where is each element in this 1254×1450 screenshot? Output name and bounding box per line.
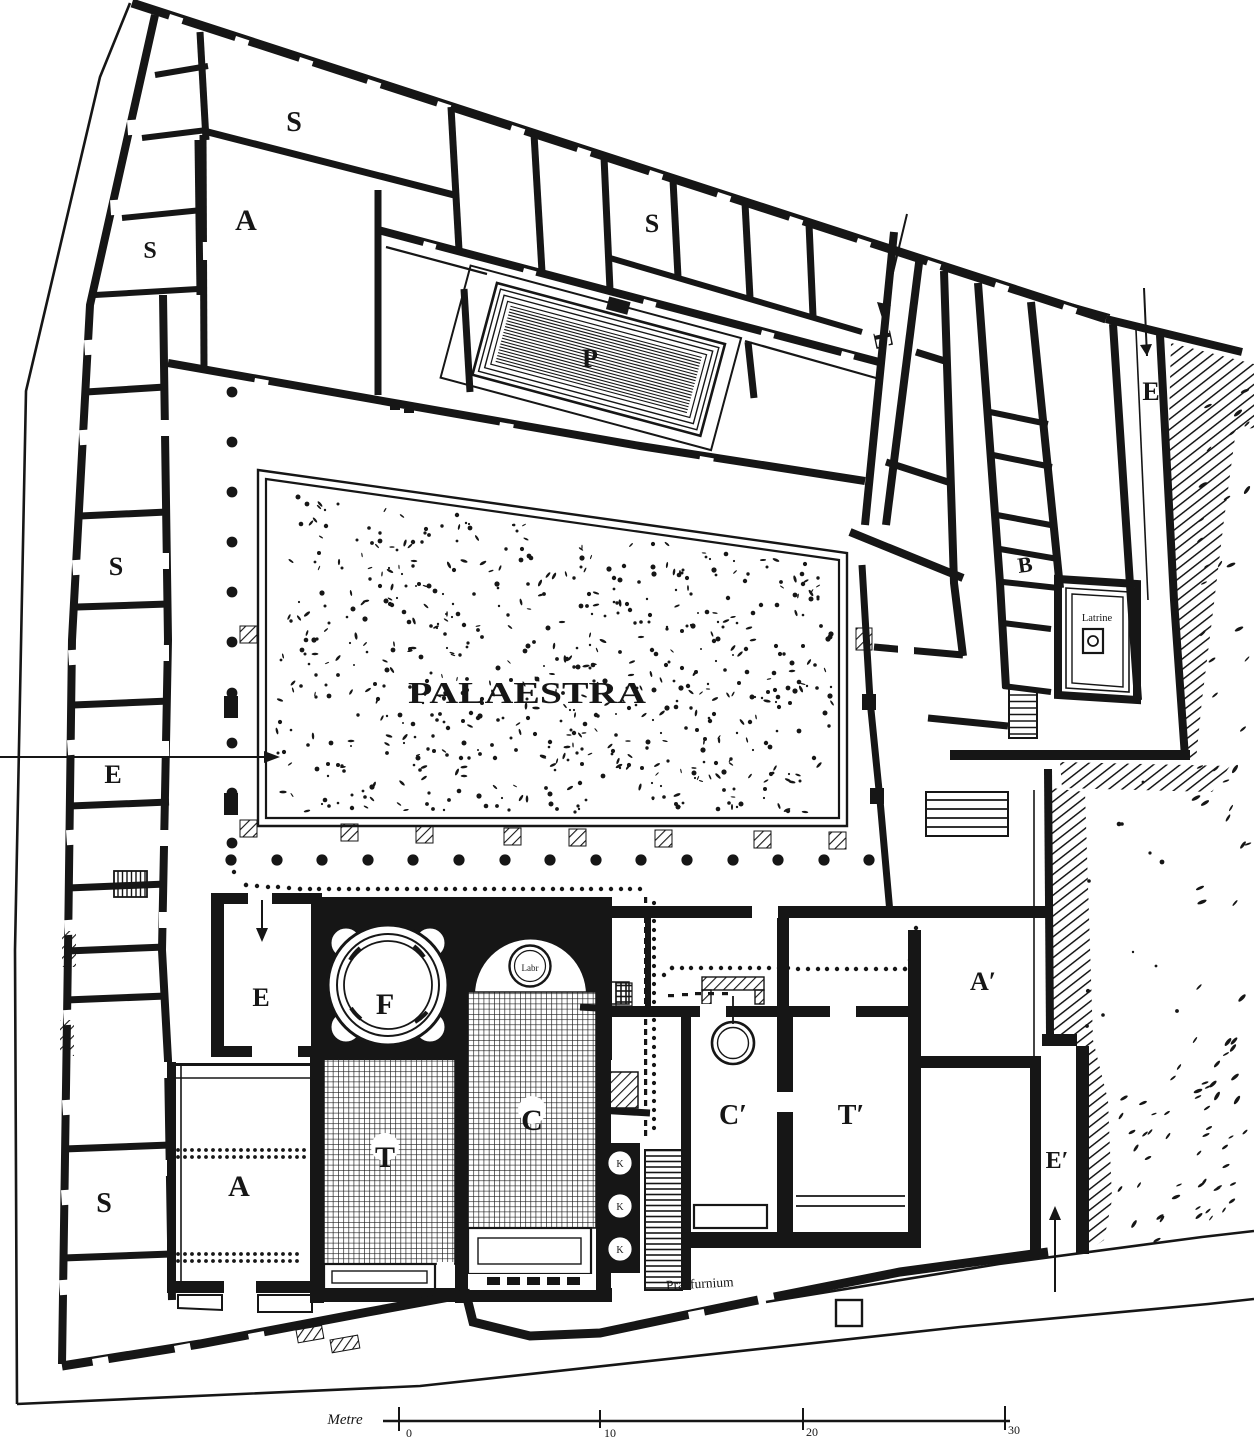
svg-text:20: 20 — [806, 1425, 818, 1439]
svg-text:0: 0 — [406, 1426, 412, 1440]
svg-text:A: A — [235, 204, 257, 237]
svg-text:K: K — [616, 1202, 624, 1213]
svg-text:P: P — [582, 344, 598, 373]
svg-text:S: S — [286, 107, 302, 138]
svg-text:C: C — [521, 1104, 543, 1137]
svg-text:C′: C′ — [719, 1100, 747, 1131]
svg-text:E: E — [1142, 377, 1159, 406]
svg-text:E: E — [252, 983, 269, 1012]
svg-text:E: E — [104, 760, 121, 789]
svg-text:F: F — [376, 988, 394, 1021]
svg-text:S: S — [96, 1188, 112, 1219]
svg-text:E′: E′ — [1046, 1148, 1069, 1174]
svg-text:30: 30 — [1008, 1423, 1020, 1437]
svg-text:K: K — [616, 1159, 624, 1170]
svg-text:A: A — [228, 1170, 250, 1203]
svg-text:A′: A′ — [970, 967, 996, 996]
svg-text:T: T — [375, 1141, 395, 1174]
svg-text:S: S — [143, 238, 156, 264]
svg-text:Metre: Metre — [326, 1412, 363, 1428]
svg-text:Latrine: Latrine — [1082, 613, 1113, 624]
svg-text:10: 10 — [604, 1426, 616, 1440]
svg-text:S: S — [109, 552, 123, 581]
svg-text:T′: T′ — [838, 1100, 865, 1131]
svg-text:K: K — [616, 1245, 624, 1256]
svg-text:S: S — [645, 209, 659, 238]
svg-text:PALAESTRA: PALAESTRA — [408, 675, 647, 710]
svg-text:Labr: Labr — [522, 963, 539, 973]
